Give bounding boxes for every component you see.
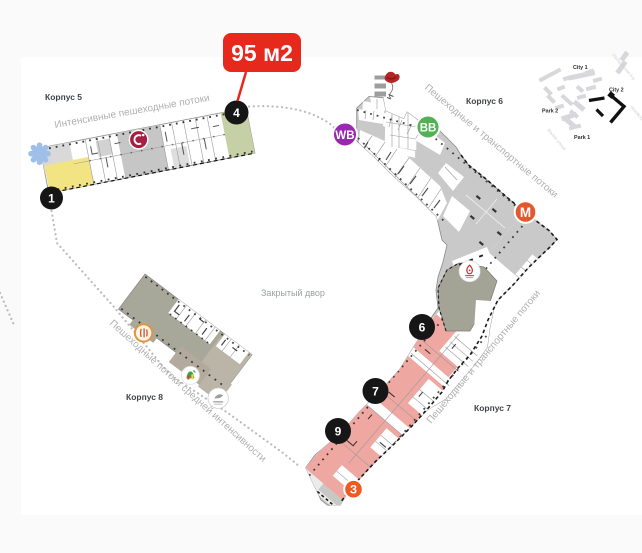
svg-text:Закрытый двор: Закрытый двор [261, 288, 325, 298]
svg-text:9: 9 [335, 425, 342, 439]
svg-text:Корпус 7: Корпус 7 [474, 403, 511, 413]
svg-text:95 м2: 95 м2 [231, 40, 293, 66]
svg-text:З: З [350, 485, 357, 497]
svg-text:City 2: City 2 [609, 88, 624, 94]
svg-text:Корпус 6: Корпус 6 [466, 96, 503, 106]
svg-text:Корпус 8: Корпус 8 [126, 392, 163, 402]
svg-text:7: 7 [372, 385, 379, 399]
svg-text:1: 1 [48, 192, 55, 206]
svg-text:Park 1: Park 1 [574, 135, 590, 141]
svg-text:WB: WB [335, 130, 354, 142]
svg-text:City 1: City 1 [573, 65, 588, 71]
svg-text:BB: BB [420, 123, 437, 135]
svg-text:4: 4 [233, 106, 240, 120]
svg-text:Park 2: Park 2 [542, 109, 558, 115]
svg-text:М: М [520, 205, 531, 220]
svg-text:Корпус 5: Корпус 5 [45, 92, 82, 102]
svg-text:6: 6 [419, 321, 426, 335]
